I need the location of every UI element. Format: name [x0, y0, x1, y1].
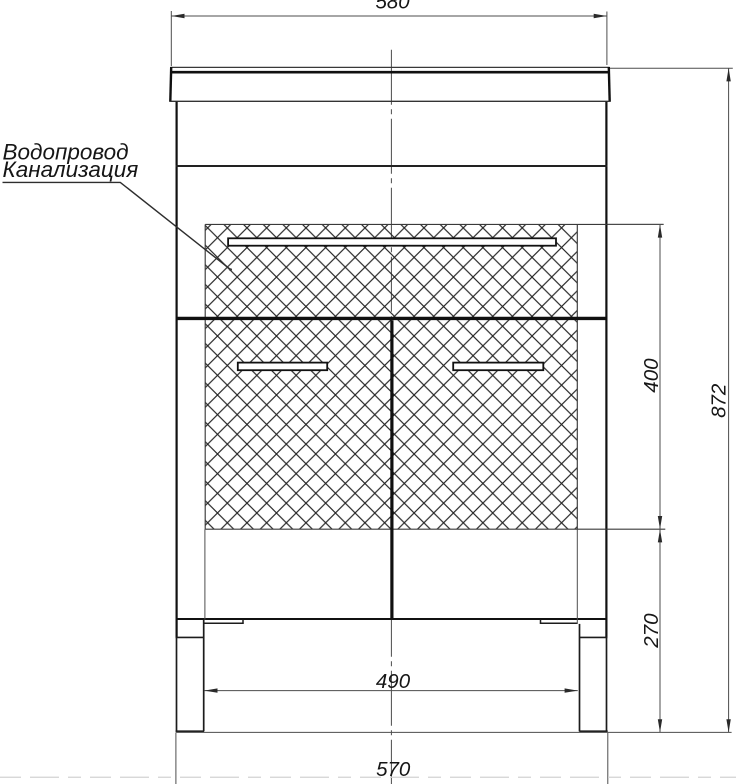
svg-text:400: 400 — [640, 358, 663, 393]
svg-text:490: 490 — [376, 670, 411, 693]
svg-text:580: 580 — [375, 0, 410, 14]
svg-text:872: 872 — [707, 383, 730, 418]
svg-text:270: 270 — [640, 613, 663, 649]
svg-text:Канализация: Канализация — [3, 157, 139, 182]
